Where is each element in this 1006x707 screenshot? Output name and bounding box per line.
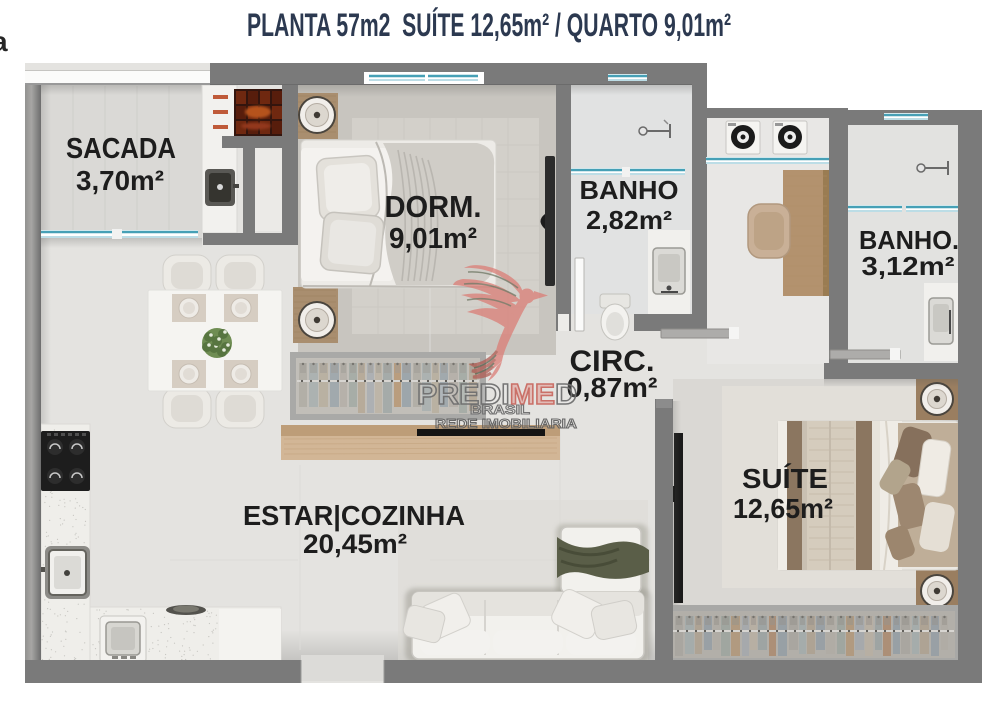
svg-text:3,12m²: 3,12m² bbox=[862, 251, 955, 281]
svg-text:20,45m²: 20,45m² bbox=[303, 529, 407, 559]
svg-text:9,01m²: 9,01m² bbox=[389, 223, 477, 255]
svg-text:REDE IMOBILIARIA: REDE IMOBILIARIA bbox=[435, 416, 578, 431]
svg-text:PLANTA 57m2 SUÍTE 12,65m² / Q: PLANTA 57m2 SUÍTE 12,65m² / QUARTO 9,01m… bbox=[247, 7, 731, 43]
svg-text:BRASIL: BRASIL bbox=[470, 402, 530, 417]
svg-text:ESTAR|COZINHA: ESTAR|COZINHA bbox=[243, 500, 465, 531]
svg-text:a: a bbox=[0, 26, 8, 57]
svg-text:12,65m²: 12,65m² bbox=[733, 493, 833, 524]
svg-text:3,70m²: 3,70m² bbox=[76, 165, 164, 196]
svg-text:2,82m²: 2,82m² bbox=[586, 205, 672, 235]
svg-text:SUÍTE: SUÍTE bbox=[742, 463, 828, 494]
svg-text:BANHO: BANHO bbox=[580, 175, 679, 205]
svg-text:DORM.: DORM. bbox=[385, 189, 482, 224]
svg-text:0,87m²: 0,87m² bbox=[567, 372, 658, 403]
svg-text:SACADA: SACADA bbox=[66, 133, 176, 165]
